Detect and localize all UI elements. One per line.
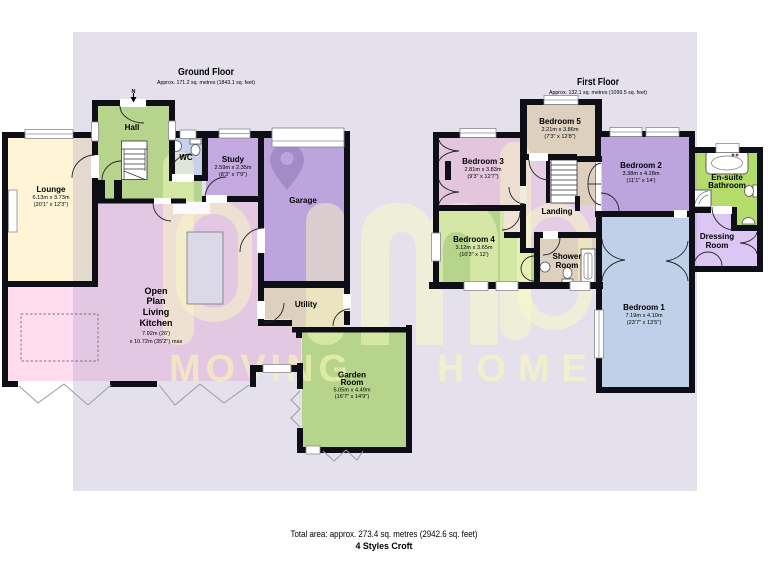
- svg-text:Dressing: Dressing: [700, 232, 734, 241]
- svg-text:6.13m x 3.73m: 6.13m x 3.73m: [33, 195, 70, 201]
- svg-text:Garage: Garage: [289, 196, 317, 205]
- svg-text:Shower: Shower: [553, 252, 582, 261]
- svg-text:Utility: Utility: [295, 300, 318, 309]
- svg-text:4 Styles Croft: 4 Styles Croft: [356, 541, 414, 552]
- svg-text:7.19m x 4.10m: 7.19m x 4.10m: [626, 313, 663, 319]
- svg-text:Landing: Landing: [541, 207, 572, 216]
- svg-text:HOME: HOME: [437, 348, 599, 390]
- svg-text:(23'7" x 13'5"): (23'7" x 13'5"): [627, 320, 662, 326]
- svg-text:2.21m x 3.86m: 2.21m x 3.86m: [542, 127, 579, 133]
- svg-text:(7'3" x 12'8"): (7'3" x 12'8"): [544, 134, 575, 140]
- svg-text:(9'3" x 12'7"): (9'3" x 12'7"): [467, 174, 498, 180]
- svg-text:Bedroom 3: Bedroom 3: [462, 157, 504, 166]
- svg-text:Room: Room: [706, 241, 729, 250]
- svg-text:Living: Living: [143, 307, 170, 317]
- svg-text:Bedroom 4: Bedroom 4: [453, 235, 495, 244]
- svg-text:7.92m (26'): 7.92m (26'): [142, 331, 170, 337]
- svg-text:2.81m x 3.83m: 2.81m x 3.83m: [465, 167, 502, 173]
- svg-text:3.12m x 3.65m: 3.12m x 3.65m: [456, 245, 493, 251]
- svg-text:First Floor: First Floor: [577, 76, 619, 88]
- svg-text:(10'3" x 12'): (10'3" x 12'): [459, 252, 488, 258]
- svg-text:Total area: approx. 273.4 sq.: Total area: approx. 273.4 sq. metres (29…: [291, 529, 478, 539]
- svg-text:(8'3" x 7'9"): (8'3" x 7'9"): [219, 172, 247, 178]
- svg-text:Open: Open: [144, 286, 167, 296]
- svg-text:(16'7" x 14'9"): (16'7" x 14'9"): [335, 394, 370, 400]
- svg-text:2.59m x 2.35m: 2.59m x 2.35m: [215, 165, 252, 171]
- svg-text:Lounge: Lounge: [37, 185, 66, 194]
- svg-text:Bedroom 2: Bedroom 2: [620, 161, 662, 170]
- svg-text:Plan: Plan: [146, 296, 165, 306]
- svg-text:Bathroom: Bathroom: [708, 181, 746, 190]
- svg-text:Room: Room: [556, 261, 579, 270]
- svg-text:Approx. 132.1 sq. metres (1099: Approx. 132.1 sq. metres (1099.5 sq. fee…: [549, 90, 647, 96]
- svg-text:5.05m x 4.49m: 5.05m x 4.49m: [334, 388, 371, 394]
- svg-text:(20'1" x 12'3"): (20'1" x 12'3"): [34, 202, 69, 208]
- svg-text:Hall: Hall: [125, 123, 140, 132]
- svg-text:WC: WC: [179, 153, 193, 162]
- svg-text:Ground Floor: Ground Floor: [178, 66, 234, 78]
- svg-text:Approx. 171.2 sq. metres (1843: Approx. 171.2 sq. metres (1843.1 sq. fee…: [157, 80, 255, 86]
- svg-text:3.38m x 4.28m: 3.38m x 4.28m: [623, 171, 660, 177]
- svg-text:Study: Study: [222, 155, 245, 164]
- svg-text:Kitchen: Kitchen: [139, 318, 172, 328]
- svg-text:(11'1" x 14'): (11'1" x 14'): [627, 178, 656, 184]
- svg-text:Room: Room: [341, 378, 364, 387]
- svg-text:Bedroom 1: Bedroom 1: [623, 303, 665, 312]
- svg-text:Bedroom 5: Bedroom 5: [539, 117, 581, 126]
- svg-text:x 10.72m (35'2") max: x 10.72m (35'2") max: [130, 339, 183, 345]
